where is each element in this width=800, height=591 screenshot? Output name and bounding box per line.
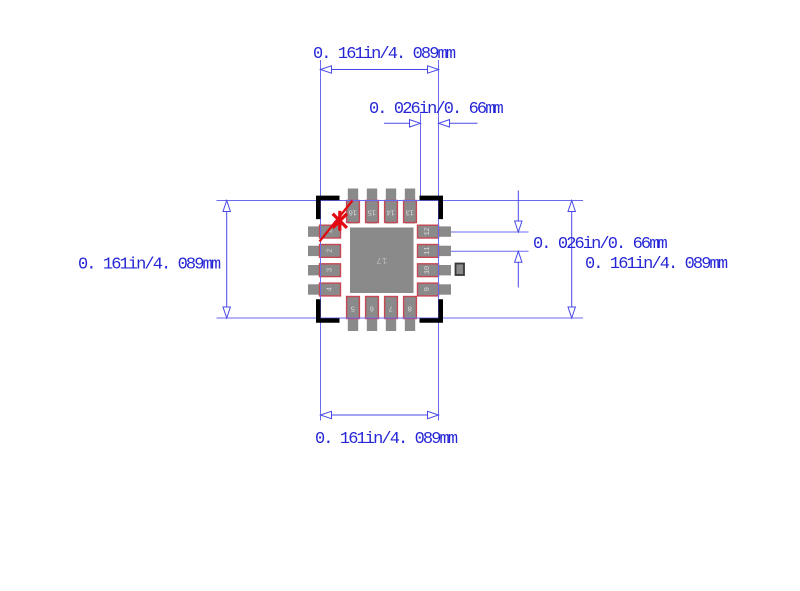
- pads-bottom: 5 6 7 8: [347, 296, 417, 331]
- pad-5: 5: [347, 296, 360, 331]
- dim-bottom-width: [321, 411, 439, 418]
- pad-14: 14: [385, 189, 398, 224]
- pad-number: 16: [348, 208, 357, 216]
- dimension-label-top-pitch: 0. 026in/0. 66mm: [369, 100, 504, 119]
- pad-number: 8: [408, 304, 412, 312]
- corner-bracket-bottom-left: [316, 299, 340, 323]
- pad-10: 10: [418, 264, 452, 277]
- pad-7: 7: [385, 296, 398, 331]
- pad-number: 7: [389, 304, 393, 312]
- pads-top: 16 15 14 13: [347, 189, 417, 224]
- pad-13: 13: [404, 189, 417, 224]
- pad-number: 9: [424, 287, 432, 291]
- thermal-pad-number: 17: [376, 255, 387, 266]
- dim-top-pitch: [384, 120, 478, 127]
- pad-8: 8: [404, 296, 417, 331]
- pad-number: 12: [424, 228, 432, 236]
- dimension-label-right-height: 0. 161in/4. 089mm: [585, 255, 728, 274]
- pad-number: 11: [424, 246, 432, 255]
- pad-number: 14: [386, 208, 395, 216]
- thermal-pad: 17: [350, 228, 414, 294]
- pad-9: 9: [418, 283, 452, 296]
- footprint-diagram: 16 15 14 13 5 6: [0, 0, 800, 591]
- pads-right: 12 11 10 9: [418, 225, 452, 296]
- pad-2: 2: [308, 245, 341, 258]
- dim-right-height: [568, 201, 575, 319]
- dim-top-width: [321, 66, 439, 73]
- pad-11: 11: [418, 245, 452, 258]
- pad-6: 6: [366, 296, 379, 331]
- pad-12: 12: [418, 225, 452, 238]
- pad-number: 2: [327, 249, 335, 253]
- pad-number: 13: [405, 208, 414, 216]
- pad-3: 3: [308, 264, 341, 277]
- dimension-label-right-pitch: 0. 026in/0. 66mm: [533, 235, 668, 254]
- dim-left-height: [223, 201, 230, 319]
- pad-15: 15: [366, 189, 379, 224]
- dimension-label-left-height: 0. 161in/4. 089mm: [78, 256, 221, 275]
- pad-number: 15: [367, 208, 376, 216]
- via-pad: [456, 264, 465, 276]
- dimension-label-top-width: 0. 161in/4. 089mm: [313, 45, 456, 64]
- pad-4: 4: [308, 283, 341, 296]
- pad-number: 10: [424, 265, 432, 274]
- corner-bracket-bottom-right: [420, 299, 444, 323]
- corner-bracket-top-right: [420, 196, 444, 220]
- dim-right-pitch: [515, 191, 522, 288]
- dimension-label-bottom-width: 0. 161in/4. 089mm: [315, 430, 458, 449]
